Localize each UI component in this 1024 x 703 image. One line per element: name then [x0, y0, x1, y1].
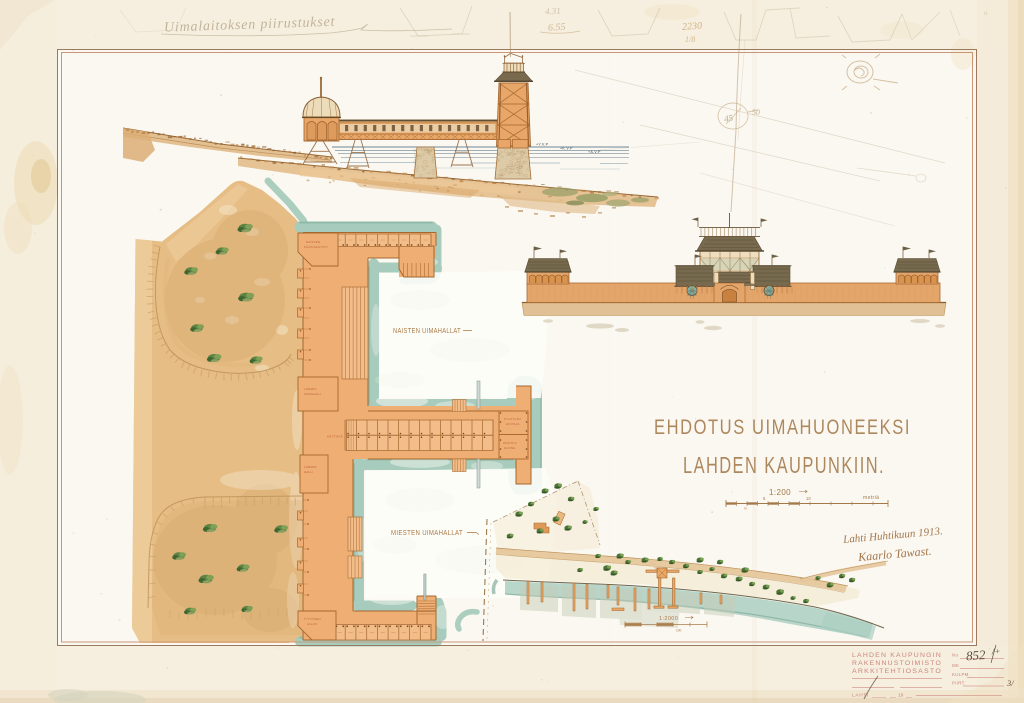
svg-text:NAISTEN: NAISTEN: [306, 240, 320, 244]
svg-text:No: No: [952, 653, 958, 658]
svg-text:ALLAS: ALLAS: [307, 622, 317, 626]
svg-text:MK: MK: [952, 663, 959, 668]
svg-text:RAKENNUSTOIMISTO: RAKENNUSTOIMISTO: [852, 660, 942, 667]
svg-text:ODOTUS: ODOTUS: [503, 441, 517, 445]
svg-text:852: 852: [965, 647, 986, 663]
svg-text:MIESTEN UIMAHALLAT: MIESTEN UIMAHALLAT: [391, 530, 463, 537]
svg-text:TYTTÖJEN: TYTTÖJEN: [304, 617, 321, 621]
svg-text:HOITAJA: HOITAJA: [506, 422, 520, 426]
svg-text:6.55: 6.55: [548, 22, 566, 34]
svg-text:4.31: 4.31: [545, 6, 561, 17]
svg-text:+A.V.P: +A.V.P: [588, 150, 601, 154]
svg-text:1:200: 1:200: [769, 488, 791, 497]
svg-text:HUONE: HUONE: [504, 446, 516, 450]
svg-text:PÄÄSISKÄYNTI: PÄÄSISKÄYNTI: [304, 245, 328, 249]
svg-text:2230: 2230: [682, 21, 703, 33]
svg-text:EHDOTUS UIMAHUONEEKSI: EHDOTUS UIMAHUONEEKSI: [654, 416, 911, 439]
svg-text:+K.V.P: +K.V.P: [560, 147, 573, 151]
svg-text:KYLPYLÄN: KYLPYLÄN: [504, 417, 521, 421]
svg-text:100: 100: [676, 629, 682, 633]
svg-text:NAISTEN UIMAHALLAT: NAISTEN UIMAHALLAT: [393, 328, 461, 335]
svg-text:1/8: 1/8: [685, 35, 695, 44]
svg-text:o: o: [984, 9, 988, 17]
svg-text:m: m: [744, 507, 747, 511]
svg-text:LÄMMIN: LÄMMIN: [304, 465, 317, 469]
svg-text:PIIRT.: PIIRT.: [952, 681, 966, 686]
svg-text:1:2000: 1:2000: [659, 616, 678, 622]
svg-text:+Y.V.P: +Y.V.P: [536, 143, 549, 147]
svg-text:ARKKITEHTIOSASTO: ARKKITEHTIOSASTO: [852, 668, 942, 675]
svg-text:LAHDEN KAUPUNKIIN.: LAHDEN KAUPUNKIIN.: [683, 452, 885, 478]
svg-text:KULPM.: KULPM.: [952, 672, 970, 677]
svg-text:19: 19: [898, 693, 904, 699]
svg-text:UIMAHALLI: UIMAHALLI: [304, 392, 321, 396]
svg-text:metriä: metriä: [863, 495, 879, 501]
svg-text:HALLI: HALLI: [304, 470, 313, 474]
svg-text:KÄYTÄVÄ: KÄYTÄVÄ: [327, 435, 343, 439]
svg-text:LAHDEN KAUPUNGIN: LAHDEN KAUPUNGIN: [852, 652, 942, 659]
svg-text:LÄMMIN: LÄMMIN: [304, 387, 317, 391]
svg-text:10: 10: [806, 496, 811, 501]
